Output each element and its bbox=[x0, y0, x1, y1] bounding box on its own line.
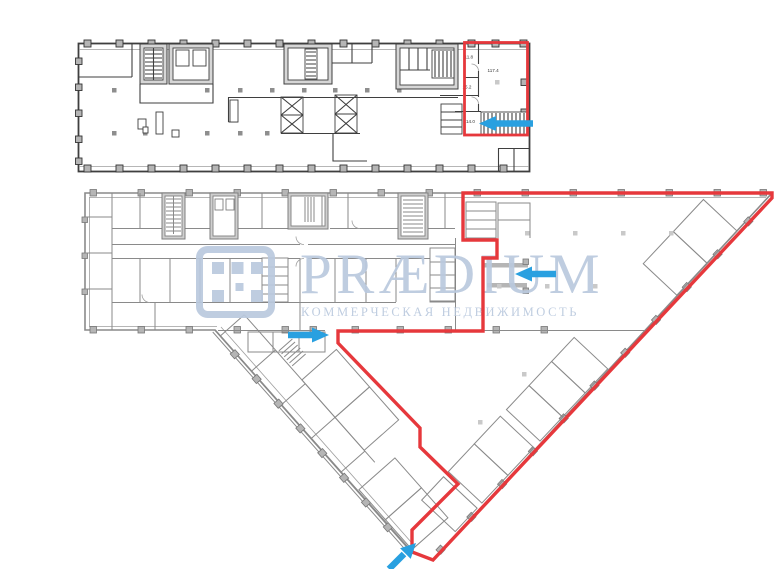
lower-elevator-core bbox=[210, 193, 238, 239]
lower-center-core bbox=[288, 193, 328, 229]
watermark-subtitle-text: КОММЕРЧЕСКАЯ НЕДВИЖИМОСТЬ bbox=[301, 305, 579, 319]
upper-stair-core bbox=[140, 44, 167, 84]
lower-stair-core-2 bbox=[398, 193, 428, 239]
upper-floor-plan: 11.8 117.4 15.2 14.0 bbox=[76, 40, 530, 172]
plans-graphic: 11.8 117.4 15.2 14.0 bbox=[0, 0, 784, 569]
upper-plan-field-columns bbox=[112, 88, 402, 136]
upper-shaft-x1 bbox=[281, 97, 303, 133]
lower-entry-left-arrow-icon bbox=[288, 328, 329, 343]
lower-stair-core-1 bbox=[162, 193, 185, 239]
watermark-brand-text: PRÆDIUM bbox=[300, 243, 604, 306]
upper-wc-block bbox=[440, 96, 463, 135]
room-label-117-4: 117.4 bbox=[488, 68, 500, 73]
upper-shaft-x2 bbox=[335, 95, 357, 133]
watermark: PRÆDIUM КОММЕРЧЕСКАЯ НЕДВИЖИМОСТЬ bbox=[200, 243, 604, 319]
upper-right-core bbox=[396, 44, 458, 89]
floor-plan-sheet: 11.8 117.4 15.2 14.0 bbox=[0, 0, 784, 569]
lower-wing-left-edge bbox=[212, 278, 471, 555]
watermark-logo-icon bbox=[200, 250, 272, 315]
upper-elevator-core bbox=[169, 44, 213, 84]
room-label-14-0: 14.0 bbox=[466, 119, 475, 124]
upper-center-core bbox=[284, 44, 332, 84]
